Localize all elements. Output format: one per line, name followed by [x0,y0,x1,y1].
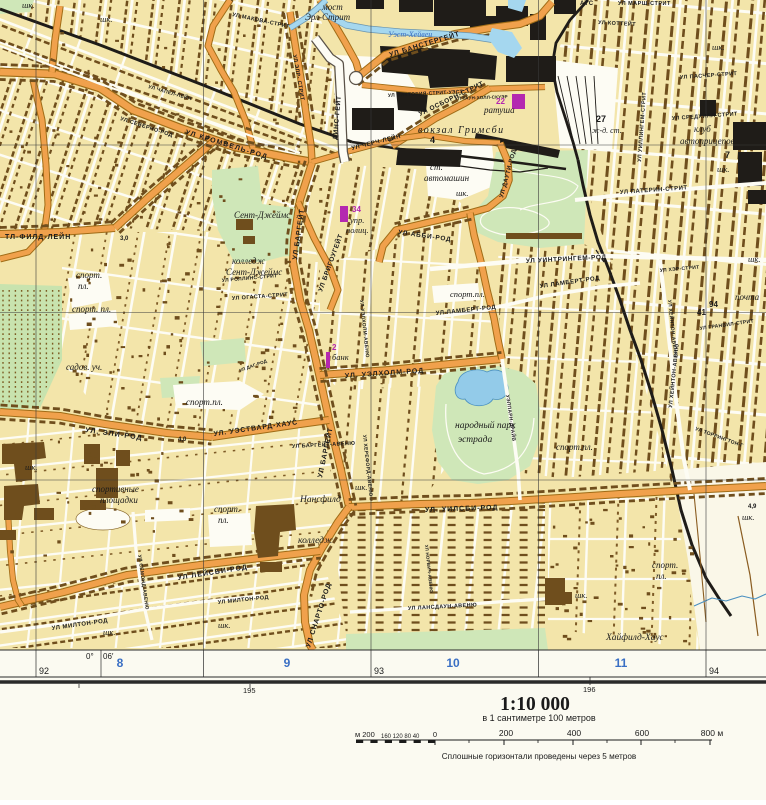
svg-text:22: 22 [496,97,505,106]
svg-text:ТЛ-ФИЛД-ЛЕЙН: ТЛ-ФИЛД-ЛЕЙН [5,232,71,241]
svg-text:площадки: площадки [100,495,138,505]
svg-text:колледж: колледж [298,535,333,546]
svg-text:пл.: пл. [656,571,667,581]
svg-text:ст.: ст. [430,162,443,172]
svg-text:клуб: клуб [694,124,711,134]
svg-text:эстрада: эстрада [458,434,492,445]
svg-text:Нансфилд: Нансфилд [299,494,341,505]
svg-text:27: 27 [596,114,606,124]
svg-text:800 м: 800 м [701,728,724,738]
svg-text:УЛ МАРШ-СТРИТ: УЛ МАРШ-СТРИТ [618,1,671,7]
svg-text:шк.: шк. [100,14,113,24]
svg-text:94: 94 [709,666,719,676]
svg-text:спорт.: спорт. [76,270,102,280]
svg-text:банк: банк [332,352,350,362]
svg-text:пл.: пл. [218,515,229,525]
svg-text:полиц.: полиц. [346,225,369,235]
svg-text:41: 41 [697,308,706,317]
svg-text:600: 600 [635,728,649,738]
svg-text:шк.: шк. [712,42,725,52]
svg-text:4,0: 4,0 [178,437,187,443]
svg-text:0: 0 [433,730,437,739]
svg-text:народный парк: народный парк [455,420,516,431]
svg-text:в 1 сантиметре 100 метров: в 1 сантиметре 100 метров [482,713,595,723]
svg-text:0°: 0° [86,652,94,661]
svg-text:ж-д. ст.: ж-д. ст. [592,126,622,135]
svg-text:1:10 000: 1:10 000 [500,694,570,715]
svg-text:шк.: шк. [717,164,730,174]
svg-text:34: 34 [352,205,361,214]
svg-text:Эрл-Стрит: Эрл-Стрит [305,12,351,22]
svg-text:спорт.пл.: спорт.пл. [186,397,223,407]
svg-text:спорт.пл.: спорт.пл. [556,442,593,452]
svg-text:АТС: АТС [580,1,594,7]
svg-text:спорт.: спорт. [214,504,240,514]
svg-text:94: 94 [709,300,718,309]
svg-text:шк.: шк. [25,462,38,472]
svg-text:спорт.пл.: спорт.пл. [450,289,485,299]
svg-text:м 200: м 200 [355,730,375,739]
svg-text:автомашин: автомашин [424,173,470,183]
svg-text:шк.: шк. [22,0,35,10]
svg-text:93: 93 [374,666,384,676]
svg-text:шк.: шк. [748,254,761,264]
svg-text:196: 196 [583,685,596,694]
svg-text:160 120 80 40: 160 120 80 40 [381,734,420,740]
svg-text:колледж: колледж [232,256,266,266]
svg-text:2: 2 [332,343,337,352]
svg-text:92: 92 [39,666,49,676]
svg-text:шк.: шк. [103,627,116,637]
svg-text:пл.: пл. [78,281,89,291]
svg-text:10: 10 [446,656,460,670]
svg-text:шк.: шк. [456,188,469,198]
svg-text:мост: мост [321,2,343,12]
svg-text:почта: почта [735,292,760,302]
svg-text:Сент-Джеймс: Сент-Джеймс [226,267,282,277]
svg-text:06′: 06′ [103,652,114,661]
svg-text:шк.: шк. [575,590,588,600]
svg-text:200: 200 [499,728,513,738]
svg-text:Сент-Джеймс: Сент-Джеймс [234,210,290,220]
svg-text:11: 11 [615,656,628,670]
svg-text:Уэст-Хейвен: Уэст-Хейвен [388,30,432,39]
svg-text:195: 195 [243,686,256,695]
svg-text:Хайфилд-Хаус: Хайфилд-Хаус [605,632,665,643]
svg-text:ратуша: ратуша [483,105,515,115]
svg-text:шк.: шк. [355,482,368,492]
svg-text:400: 400 [567,728,581,738]
svg-text:Сплошные горизонтали проведены: Сплошные горизонтали проведены через 5 м… [442,752,637,761]
svg-text:8: 8 [117,656,124,670]
svg-text:спорт. пл.: спорт. пл. [72,304,111,314]
svg-text:9: 9 [284,656,291,670]
svg-text:спорт.: спорт. [652,560,678,570]
svg-text:шк.: шк. [218,620,231,630]
svg-text:автоприцепов: автоприцепов [680,136,735,146]
svg-text:4,9: 4,9 [748,504,757,510]
svg-text:садов. уч.: садов. уч. [66,362,102,372]
svg-text:спортивные: спортивные [92,484,139,494]
svg-text:7: 7 [725,150,730,160]
svg-text:упр.: упр. [349,215,364,225]
svg-text:шк.: шк. [742,512,755,522]
svg-text:3,0: 3,0 [120,236,129,242]
svg-text:4: 4 [430,135,435,145]
